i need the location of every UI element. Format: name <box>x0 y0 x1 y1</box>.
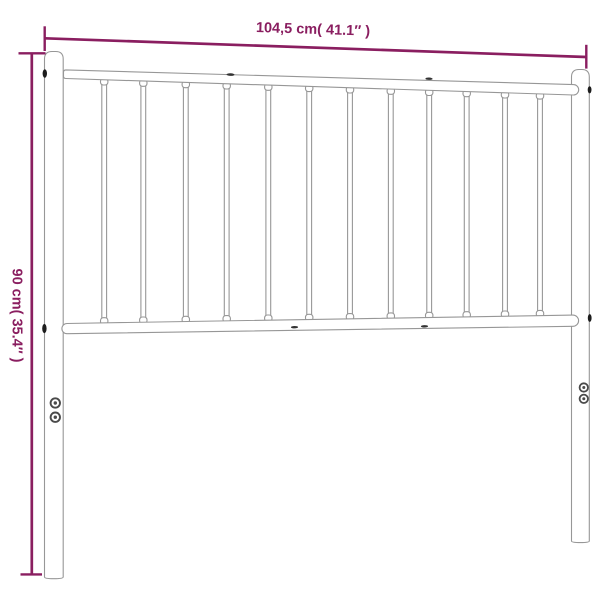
svg-text:90 cm( 35.4″ ): 90 cm( 35.4″ ) <box>9 269 25 363</box>
svg-text:104,5 cm( 41.1″ ): 104,5 cm( 41.1″ ) <box>256 20 371 40</box>
